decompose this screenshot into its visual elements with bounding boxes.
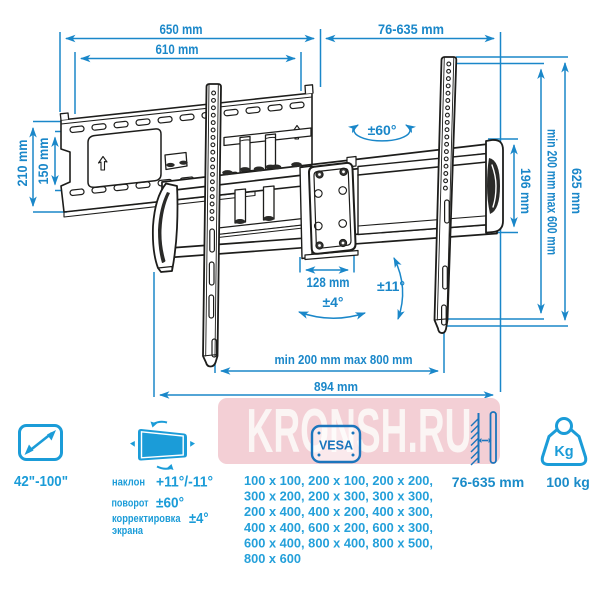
svg-text:100 kg: 100 kg bbox=[546, 474, 590, 490]
svg-text:300 x 200, 200 x 300, 300 x 30: 300 x 200, 200 x 300, 300 x 300, bbox=[244, 489, 433, 504]
svg-text:400 x 400, 600 x 200, 600 x 30: 400 x 400, 600 x 200, 600 x 300, bbox=[244, 520, 433, 535]
svg-text:76-635 mm: 76-635 mm bbox=[452, 474, 524, 490]
svg-text:±4°: ±4° bbox=[322, 294, 343, 310]
svg-text:корректировка: корректировка bbox=[112, 513, 181, 525]
svg-text:150 mm: 150 mm bbox=[36, 138, 51, 185]
svg-text:+11°/-11°: +11°/-11° bbox=[156, 474, 213, 491]
svg-text:наклон: наклон bbox=[112, 477, 145, 489]
svg-text:625 mm: 625 mm bbox=[569, 168, 584, 214]
svg-text:42"-100": 42"-100" bbox=[14, 473, 68, 490]
svg-text:600 x 400, 800 x 400, 800 x 50: 600 x 400, 800 x 400, 800 x 500, bbox=[244, 535, 433, 550]
svg-text:76-635 mm: 76-635 mm bbox=[378, 22, 444, 37]
svg-text:min 200 mm max 600 mm: min 200 mm max 600 mm bbox=[545, 129, 560, 255]
svg-text:800 x 600: 800 x 600 bbox=[244, 551, 301, 566]
svg-text:±60°: ±60° bbox=[368, 122, 397, 138]
svg-text:±4°: ±4° bbox=[189, 510, 209, 527]
svg-text:поворот: поворот bbox=[112, 498, 149, 510]
svg-text:200 x 400, 400 x 200, 400 x 30: 200 x 400, 400 x 200, 400 x 300, bbox=[244, 504, 433, 519]
svg-text:экрана: экрана bbox=[112, 525, 144, 537]
svg-text:Kg: Kg bbox=[554, 444, 573, 460]
svg-text:196 mm: 196 mm bbox=[518, 168, 533, 214]
svg-text:±11°: ±11° bbox=[377, 278, 405, 294]
svg-text:±60°: ±60° bbox=[156, 495, 184, 512]
svg-text:210 mm: 210 mm bbox=[15, 140, 30, 187]
svg-text:VESA: VESA bbox=[319, 439, 353, 453]
svg-text:894 mm: 894 mm bbox=[314, 379, 358, 394]
svg-text:100 x 100, 200 x 100, 200 x 20: 100 x 100, 200 x 100, 200 x 200, bbox=[244, 473, 433, 488]
svg-text:650 mm: 650 mm bbox=[160, 22, 203, 37]
svg-text:128 mm: 128 mm bbox=[307, 275, 350, 290]
svg-text:610 mm: 610 mm bbox=[156, 42, 199, 57]
svg-text:min 200 mm max 800 mm: min 200 mm max 800 mm bbox=[275, 352, 413, 367]
